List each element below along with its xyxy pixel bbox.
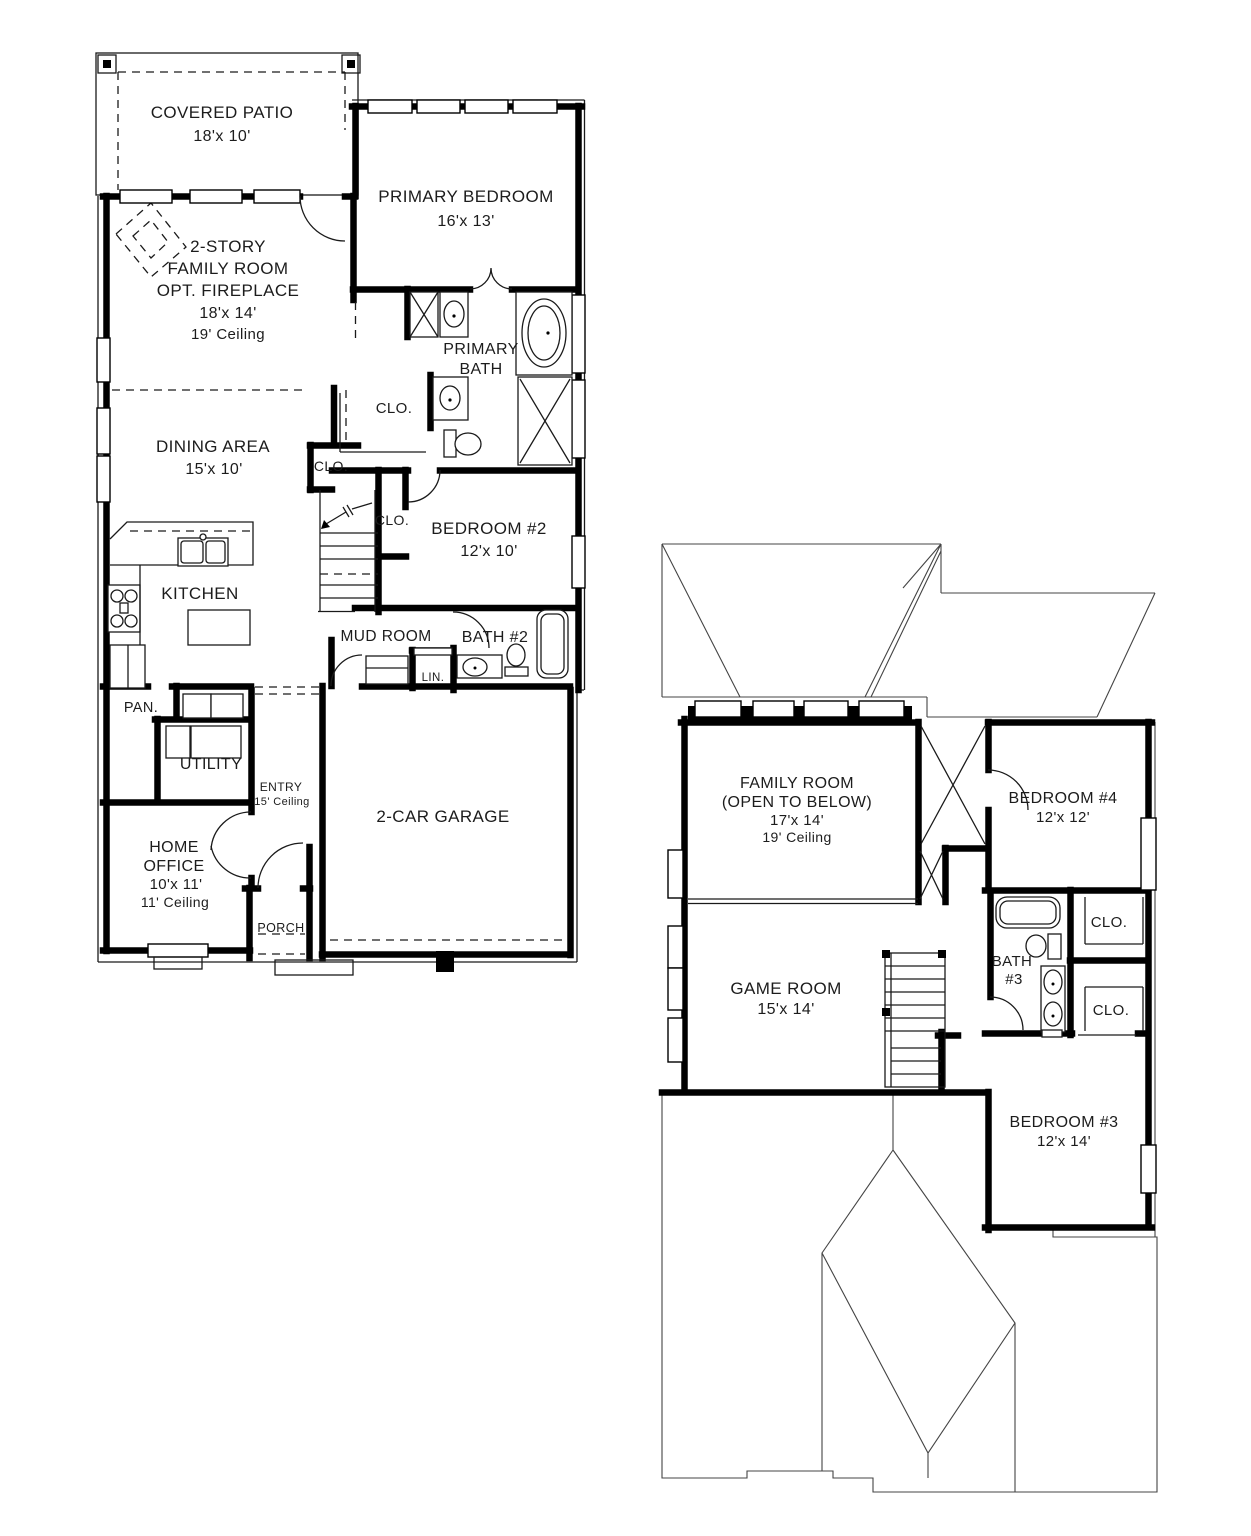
bath3-sink-1 <box>1044 970 1062 994</box>
faucet <box>200 534 206 540</box>
open-to-below-railing <box>688 899 918 904</box>
label-family-room-1: 2-STORY <box>190 237 266 256</box>
floor2-roof-bottom <box>662 722 1157 1492</box>
optional-fireplace-part <box>133 220 168 258</box>
patio-posts-part <box>103 60 111 68</box>
label-family-room-open-1: FAMILY ROOM <box>740 775 854 792</box>
bath3-fixtures-part <box>1052 983 1055 986</box>
stair-direction-arrow <box>326 503 372 524</box>
label-closet-primary: CLO. <box>376 400 413 417</box>
linen-front <box>414 648 452 655</box>
label-closet-bottom: CLO. <box>1093 1002 1130 1019</box>
label-covered-patio: COVERED PATIO <box>151 103 293 122</box>
mudroom-bench <box>366 656 408 684</box>
floor2-windows-part <box>668 850 683 898</box>
label-linen: LIN. <box>422 672 445 684</box>
cubby-1 <box>183 694 211 718</box>
floor2-windows-part <box>668 926 683 968</box>
label-primary-bath-1: PRIMARY <box>443 341 518 358</box>
label-bedroom4: BEDROOM #4 <box>1009 790 1118 807</box>
floor2-windows-part <box>695 701 741 717</box>
floor1-windows-part <box>97 408 110 454</box>
floor1-windows-part <box>572 295 585 373</box>
floor2-windows-part <box>1141 818 1156 890</box>
bath3-threshold <box>1042 1030 1062 1037</box>
label-office-ceiling: 11' Ceiling <box>141 894 209 910</box>
label-family-room-dim: 18'x 14' <box>199 305 256 322</box>
cubby-2 <box>211 694 243 718</box>
patio-door-arc <box>300 196 345 241</box>
floor2-windows-part <box>804 701 848 717</box>
label-utility: UTILITY <box>180 756 242 773</box>
label-family-room-2: FAMILY ROOM <box>168 259 289 278</box>
washer <box>166 726 190 758</box>
office-door-leaf1 <box>211 812 251 850</box>
kitchen-fixtures-part <box>181 541 203 563</box>
floor1-labels: COVERED PATIO 18'x 10' PRIMARY BEDROOM 1… <box>124 103 554 935</box>
floor2-windows-part <box>753 701 794 717</box>
label-bedroom3-dim: 12'x 14' <box>1037 1133 1091 1150</box>
label-game-room: GAME ROOM <box>730 979 841 998</box>
floor2-windows-part <box>859 701 904 717</box>
primary-bath-fixtures-part <box>452 314 455 317</box>
floor-plan-drawing: COVERED PATIO 18'x 10' PRIMARY BEDROOM 1… <box>0 0 1251 1536</box>
floor2-stairs-part <box>882 1008 890 1016</box>
bath3-toilet-tank <box>1048 934 1061 959</box>
patio-posts-part <box>347 60 355 68</box>
bath2-fixtures-part <box>474 667 477 670</box>
label-garage: 2-CAR GARAGE <box>376 807 509 826</box>
label-family-room-open-dim: 17'x 14' <box>770 812 824 829</box>
label-closet-top: CLO. <box>1091 914 1128 931</box>
bath2-toilet <box>507 644 525 666</box>
floor1-windows-part <box>190 190 242 203</box>
sink-2 <box>440 386 460 410</box>
label-family-room-ceiling: 19' Ceiling <box>191 326 265 343</box>
primary-bath-double-door <box>470 268 512 289</box>
label-office-1: HOME <box>149 839 199 856</box>
floor1-windows-part <box>254 190 300 203</box>
label-family-room-3: OPT. FIREPLACE <box>157 281 300 300</box>
label-bath3-2: #3 <box>1005 971 1023 988</box>
office-window-sill <box>154 957 202 969</box>
floor2-windows-part <box>668 1018 683 1062</box>
patio-outline <box>96 53 358 195</box>
primary-bath-fixtures-part <box>448 398 451 401</box>
toilet-tank <box>444 430 456 457</box>
primary-bath-fixtures-part <box>528 306 560 360</box>
primary-bath-fixtures-part <box>546 331 549 334</box>
floor1-stairs-part <box>318 490 378 612</box>
dryer <box>191 726 241 758</box>
label-game-room-dim: 15'x 14' <box>757 1001 814 1018</box>
label-dining: DINING AREA <box>156 437 270 456</box>
floor2-stairs-part <box>885 953 945 1087</box>
floor1-windows-part <box>417 100 460 113</box>
floor1-windows-part <box>97 456 110 502</box>
floor1-stairs <box>318 490 378 612</box>
label-primary-bath-2: BATH <box>459 361 502 378</box>
kitchen-fixtures <box>108 522 253 688</box>
chimney-chase <box>920 726 985 899</box>
bedroom2-door-arc <box>408 470 440 502</box>
floor2-stairs-part <box>938 950 946 958</box>
floor1-stairs-part <box>321 520 330 529</box>
chimney-chase-part <box>920 726 985 899</box>
floor1-windows-part <box>120 190 172 203</box>
bath3-fixtures-part <box>1052 1015 1055 1018</box>
kitchen-fixtures-part <box>206 541 225 563</box>
office-door-leaf2 <box>211 846 251 878</box>
floor1-windows-part <box>572 536 585 588</box>
bath2-fixtures <box>366 610 568 684</box>
label-porch: PORCH <box>257 921 304 935</box>
label-covered-patio-dim: 18'x 10' <box>193 128 250 145</box>
label-entry: ENTRY <box>260 780 302 794</box>
label-closet-hall: CLO. <box>314 458 348 474</box>
floor2-windows-part <box>668 968 683 1010</box>
sink-1 <box>444 301 464 327</box>
floor1-windows-part <box>368 100 412 113</box>
floor1-windows-part <box>513 100 557 113</box>
floor2-windows-part <box>1141 1145 1156 1193</box>
bath3-sink-2 <box>1044 1002 1062 1026</box>
label-family-room-open-2: (OPEN TO BELOW) <box>722 794 872 811</box>
patio-posts <box>98 55 360 190</box>
label-family-room-open-ceiling: 19' Ceiling <box>762 829 831 845</box>
floor2-stairs-part <box>885 953 945 1087</box>
label-bedroom4-dim: 12'x 12' <box>1036 809 1090 826</box>
floor1-windows-part <box>465 100 508 113</box>
primary-bath-fixtures <box>340 292 572 465</box>
label-bedroom2: BEDROOM #2 <box>431 519 546 538</box>
label-dining-dim: 15'x 10' <box>185 461 242 478</box>
bath2-fixtures-part <box>505 667 528 676</box>
label-closet-bed2: CLO. <box>375 512 409 528</box>
first-floor-plan: COVERED PATIO 18'x 10' PRIMARY BEDROOM 1… <box>96 53 585 975</box>
bath3-door-arc <box>990 997 1023 1030</box>
floor1-windows-part <box>148 944 208 957</box>
floor-plan-page: COVERED PATIO 18'x 10' PRIMARY BEDROOM 1… <box>0 0 1251 1536</box>
toilet-bowl <box>455 433 481 455</box>
label-bedroom2-dim: 12'x 10' <box>460 543 517 560</box>
label-kitchen: KITCHEN <box>161 584 238 603</box>
label-pantry: PAN. <box>124 700 158 716</box>
floor2-stairs-part <box>882 950 890 958</box>
label-primary-bedroom: PRIMARY BEDROOM <box>378 187 553 206</box>
second-floor-plan: FAMILY ROOM (OPEN TO BELOW) 17'x 14' 19'… <box>662 544 1157 1492</box>
label-bath2: BATH #2 <box>462 629 529 646</box>
label-bath3-1: BATH <box>992 953 1033 970</box>
floor2-stairs <box>882 950 946 1087</box>
label-primary-bedroom-dim: 16'x 13' <box>437 213 494 230</box>
garage-post <box>436 951 454 972</box>
label-mud-room: MUD ROOM <box>340 628 431 645</box>
garage-mudroom-door-arc <box>331 655 362 686</box>
floor1-windows-part <box>572 380 585 458</box>
label-office-dim: 10'x 11' <box>150 876 203 893</box>
floor2-roof-top <box>662 544 1155 717</box>
front-door-arc <box>258 843 303 888</box>
label-office-2: OFFICE <box>143 858 204 875</box>
kitchen-island <box>188 610 250 645</box>
floor1-windows-part <box>97 338 110 382</box>
label-bedroom3: BEDROOM #3 <box>1010 1114 1119 1131</box>
kitchen-fixtures-part <box>120 603 128 613</box>
label-entry-ceiling: 15' Ceiling <box>254 796 309 808</box>
